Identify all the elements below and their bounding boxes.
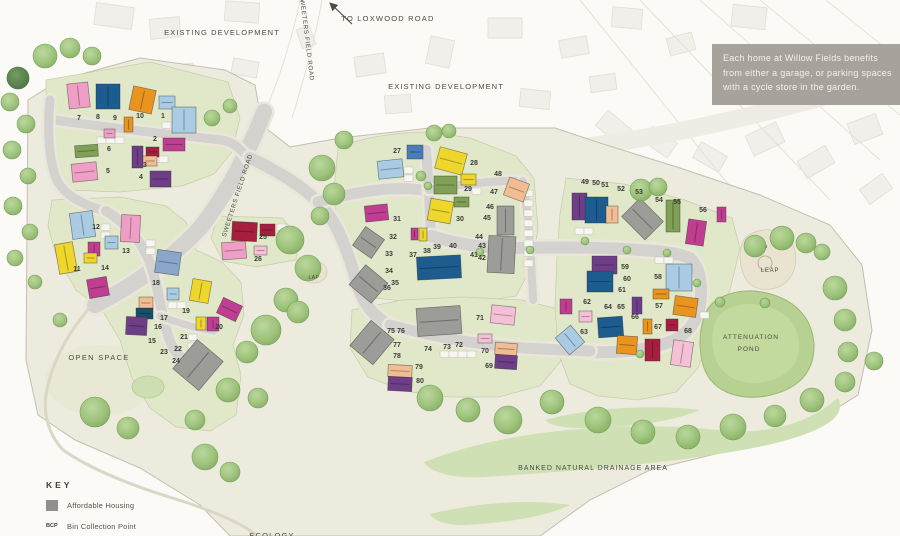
plot-number-31: 31 xyxy=(393,216,401,223)
house xyxy=(673,295,698,317)
plot-number-46: 46 xyxy=(486,204,494,211)
plot-number-77: 77 xyxy=(393,342,401,349)
plot-number-56: 56 xyxy=(699,207,707,214)
tree xyxy=(540,390,564,414)
tree xyxy=(838,342,858,362)
house xyxy=(587,271,613,292)
tree xyxy=(192,444,218,470)
house xyxy=(579,311,592,322)
parking-bay xyxy=(404,167,413,174)
existing-building xyxy=(731,4,767,29)
existing-building xyxy=(425,36,454,68)
tree xyxy=(223,99,237,113)
tree xyxy=(185,410,205,430)
plot-number-18: 18 xyxy=(152,280,160,287)
plot-number-40: 40 xyxy=(449,243,457,250)
plot-number-67: 67 xyxy=(654,324,662,331)
house xyxy=(585,197,608,223)
parking-bay xyxy=(575,228,584,235)
tree xyxy=(335,131,353,149)
tree xyxy=(764,405,786,427)
parking-bay xyxy=(664,257,673,264)
existing-building xyxy=(797,145,835,178)
house xyxy=(560,299,572,314)
tree xyxy=(309,155,335,181)
plot-number-61: 61 xyxy=(618,287,626,294)
tree xyxy=(442,124,456,138)
tree xyxy=(323,183,345,205)
existing-building xyxy=(519,88,551,109)
tree xyxy=(204,110,220,126)
existing-building xyxy=(666,32,696,56)
tree xyxy=(834,309,856,331)
plot-number-22: 22 xyxy=(174,346,182,353)
tree xyxy=(823,276,847,300)
parking-bay xyxy=(162,122,171,129)
plot-number-51: 51 xyxy=(601,182,609,189)
existing-building xyxy=(488,18,522,38)
tree xyxy=(80,397,110,427)
house xyxy=(497,206,514,235)
plot-number-1: 1 xyxy=(161,113,165,120)
map-label-existing-development-2: EXISTING DEVELOPMENT xyxy=(388,82,504,91)
parking-bay xyxy=(524,230,533,237)
tree xyxy=(311,207,329,225)
house xyxy=(487,235,516,273)
map-label-ecology: ECOLOGY xyxy=(249,531,295,536)
parking-bay xyxy=(524,220,533,227)
house xyxy=(71,162,98,183)
house xyxy=(104,129,115,138)
house xyxy=(172,107,196,133)
map-label-banked-natural-drainage-area: BANKED NATURAL DRAINAGE AREA xyxy=(518,465,668,472)
plot-number-14: 14 xyxy=(101,265,109,272)
tree xyxy=(770,226,794,250)
plot-number-33: 33 xyxy=(385,251,393,258)
plot-number-63: 63 xyxy=(580,329,588,336)
plot-number-80: 80 xyxy=(416,378,424,385)
house xyxy=(495,342,518,356)
plot-number-38: 38 xyxy=(423,248,431,255)
parking-bay xyxy=(440,351,449,358)
tree xyxy=(287,301,309,323)
house xyxy=(632,297,642,314)
house xyxy=(666,319,678,331)
parking-bay xyxy=(524,200,533,207)
plot-number-72: 72 xyxy=(455,342,463,349)
house xyxy=(120,215,140,243)
key-item-affordable-housing: Affordable Housing xyxy=(46,499,172,511)
house xyxy=(597,316,623,338)
tree xyxy=(17,115,35,133)
parking-bay xyxy=(404,175,413,182)
house xyxy=(666,264,692,291)
plot-number-23: 23 xyxy=(160,349,168,356)
plot-number-24: 24 xyxy=(172,358,180,365)
house xyxy=(364,204,389,222)
parking-bay xyxy=(467,351,476,358)
parking-bay xyxy=(159,156,168,163)
tree xyxy=(117,417,139,439)
house xyxy=(685,219,706,246)
site-plan: 1234567891011121314151617181920212223242… xyxy=(0,0,900,536)
parking-bay xyxy=(472,188,481,195)
parking-bay xyxy=(524,240,533,247)
tree xyxy=(4,197,22,215)
info-box-line: from either a garage, or parking spaces xyxy=(723,66,900,81)
tree xyxy=(7,250,23,266)
plot-number-71: 71 xyxy=(476,315,484,322)
plot-number-17: 17 xyxy=(160,315,168,322)
plot-number-16: 16 xyxy=(154,324,162,331)
house xyxy=(461,174,476,185)
info-box: Each home at Willow Fields benefits from… xyxy=(712,44,900,105)
plot-number-25: 25 xyxy=(259,234,267,241)
tree xyxy=(649,178,667,196)
tree xyxy=(796,233,816,253)
tree xyxy=(220,462,240,482)
tree xyxy=(835,372,855,392)
tree xyxy=(28,275,42,289)
existing-building xyxy=(94,2,135,29)
plot-number-28: 28 xyxy=(470,160,478,167)
parking-bay xyxy=(168,302,177,309)
plot-number-2: 2 xyxy=(153,136,157,143)
plot-number-48: 48 xyxy=(494,171,502,178)
plot-number-59: 59 xyxy=(621,264,629,271)
plot-number-55: 55 xyxy=(673,199,681,206)
house xyxy=(434,176,457,194)
parking-bay xyxy=(101,224,110,231)
house xyxy=(105,236,118,249)
tree xyxy=(456,398,480,422)
house xyxy=(416,255,461,280)
info-box-line: Each home at Willow Fields benefits xyxy=(723,51,900,66)
tree xyxy=(814,244,830,260)
existing-building xyxy=(611,7,643,30)
plot-number-32: 32 xyxy=(389,234,397,241)
tree xyxy=(623,246,631,254)
parking-bay xyxy=(458,351,467,358)
plot-number-29: 29 xyxy=(464,186,472,193)
plot-number-12: 12 xyxy=(92,224,100,231)
plot-number-42: 42 xyxy=(478,255,486,262)
map-label-lap: LAP xyxy=(309,275,320,281)
tree xyxy=(526,246,534,254)
plot-number-21: 21 xyxy=(180,334,188,341)
house xyxy=(670,340,693,368)
tree xyxy=(426,125,442,141)
existing-building xyxy=(847,114,883,145)
house xyxy=(411,228,418,240)
info-box-line: with a cycle store in the garden. xyxy=(723,80,900,95)
tree xyxy=(20,168,36,184)
plot-number-26: 26 xyxy=(254,256,262,263)
plot-number-66: 66 xyxy=(631,314,639,321)
house xyxy=(388,364,413,377)
plot-number-43: 43 xyxy=(478,243,486,250)
house xyxy=(454,197,469,207)
existing-building xyxy=(589,73,617,92)
map-label-attenuation-pond-1: ATTENUATION xyxy=(723,334,779,341)
plot-number-19: 19 xyxy=(182,308,190,315)
plot-number-74: 74 xyxy=(424,346,432,353)
plot-number-70: 70 xyxy=(481,348,489,355)
plot-number-50: 50 xyxy=(592,180,600,187)
existing-building xyxy=(745,122,785,156)
house xyxy=(96,84,120,109)
plot-number-76: 76 xyxy=(397,328,405,335)
tree xyxy=(715,297,725,307)
house xyxy=(124,117,133,132)
house xyxy=(490,305,516,325)
tree xyxy=(663,249,671,257)
plot-number-3: 3 xyxy=(143,162,147,169)
plot-number-44: 44 xyxy=(475,234,483,241)
house xyxy=(139,297,153,309)
plot-number-30: 30 xyxy=(456,216,464,223)
plot-number-5: 5 xyxy=(106,168,110,175)
house xyxy=(132,146,143,168)
tree xyxy=(636,350,644,358)
tree xyxy=(53,313,67,327)
plot-number-35: 35 xyxy=(391,280,399,287)
house xyxy=(126,316,148,335)
parking-bay xyxy=(524,210,533,217)
house xyxy=(189,279,212,304)
map-label-attenuation-pond-2: POND xyxy=(738,346,761,353)
plot-number-34: 34 xyxy=(385,268,393,275)
house xyxy=(163,138,185,151)
plot-number-47: 47 xyxy=(490,189,498,196)
tree xyxy=(83,47,101,65)
plot-number-11: 11 xyxy=(73,266,81,273)
map-label-to-loxwood-road: TO LOXWOOD ROAD xyxy=(341,14,434,23)
plot-number-13: 13 xyxy=(122,248,130,255)
tree xyxy=(720,414,746,440)
house xyxy=(606,206,618,223)
plot-number-54: 54 xyxy=(655,197,663,204)
tree xyxy=(276,226,304,254)
house xyxy=(616,335,637,354)
existing-building xyxy=(859,174,892,205)
house xyxy=(419,228,427,241)
plot-number-79: 79 xyxy=(415,364,423,371)
house xyxy=(75,144,99,158)
plot-number-15: 15 xyxy=(148,338,156,345)
plot-number-57: 57 xyxy=(655,303,663,310)
plot-number-8: 8 xyxy=(96,114,100,121)
plot-number-73: 73 xyxy=(443,344,451,351)
house xyxy=(643,319,652,334)
key-title: KEY xyxy=(46,480,172,490)
tree xyxy=(236,341,258,363)
tree xyxy=(800,388,824,412)
parking-bay xyxy=(584,228,593,235)
plot-number-36: 36 xyxy=(383,285,391,292)
plot-number-9: 9 xyxy=(113,115,117,122)
existing-building xyxy=(354,53,386,77)
tree xyxy=(585,407,611,433)
tree xyxy=(1,93,19,111)
house xyxy=(427,198,453,224)
affordable-housing-swatch xyxy=(46,500,58,511)
plot-number-4: 4 xyxy=(139,174,143,181)
house xyxy=(388,376,413,391)
parking-bay xyxy=(146,240,155,247)
plot-number-53: 53 xyxy=(635,189,643,196)
house xyxy=(717,207,726,222)
plot-number-64: 64 xyxy=(604,304,612,311)
house xyxy=(478,334,492,343)
plot-number-37: 37 xyxy=(409,252,417,259)
house xyxy=(196,317,206,330)
parking-bay xyxy=(700,312,709,319)
house xyxy=(232,221,258,241)
plot-number-39: 39 xyxy=(433,244,441,251)
plot-number-65: 65 xyxy=(617,304,625,311)
plot-number-6: 6 xyxy=(107,146,111,153)
key-item-bin-collection-point: BCP Bin Collection Point xyxy=(46,520,172,532)
house xyxy=(653,289,669,299)
house xyxy=(87,276,110,298)
existing-building xyxy=(224,1,259,23)
plot-number-60: 60 xyxy=(623,276,631,283)
plot-number-27: 27 xyxy=(393,148,401,155)
tree xyxy=(744,235,766,257)
tree xyxy=(7,67,29,89)
parking-bay xyxy=(524,260,533,267)
plot-number-75: 75 xyxy=(387,328,395,335)
map-label-open-space: OPEN SPACE xyxy=(68,353,129,362)
tree xyxy=(60,38,80,58)
house xyxy=(150,171,171,187)
parking-bay xyxy=(146,248,155,255)
house xyxy=(155,249,182,275)
house xyxy=(146,147,159,157)
map-label-leap: LEAP xyxy=(761,268,780,274)
plot-number-58: 58 xyxy=(654,274,662,281)
house xyxy=(645,339,660,361)
map-label-existing-development-1: EXISTING DEVELOPMENT xyxy=(164,28,280,37)
house xyxy=(129,86,156,114)
tree xyxy=(3,141,21,159)
house xyxy=(84,253,97,263)
tree xyxy=(33,44,57,68)
plot-number-20: 20 xyxy=(215,324,223,331)
house xyxy=(167,288,179,300)
plot-number-68: 68 xyxy=(684,328,692,335)
parking-bay xyxy=(449,351,458,358)
tree xyxy=(676,425,700,449)
house xyxy=(416,305,462,336)
tree xyxy=(424,182,432,190)
plot-number-69: 69 xyxy=(485,363,493,370)
tree xyxy=(865,352,883,370)
parking-bay xyxy=(655,257,664,264)
house xyxy=(67,82,90,109)
open-space-pond xyxy=(132,376,164,398)
house xyxy=(407,145,423,159)
house xyxy=(377,159,404,180)
tree xyxy=(22,224,38,240)
plot-number-41: 41 xyxy=(470,252,478,259)
parking-bay xyxy=(188,334,197,341)
tree xyxy=(416,171,426,181)
tree xyxy=(581,237,589,245)
map-key: KEY Affordable Housing BCP Bin Collectio… xyxy=(46,480,172,536)
tree xyxy=(417,385,443,411)
existing-building xyxy=(559,36,590,59)
existing-building xyxy=(384,94,411,114)
house xyxy=(221,241,246,260)
plot-number-49: 49 xyxy=(581,179,589,186)
house xyxy=(495,354,518,370)
plot-number-78: 78 xyxy=(393,353,401,360)
plot-number-45: 45 xyxy=(483,215,491,222)
plot-number-52: 52 xyxy=(617,186,625,193)
tree xyxy=(494,406,522,434)
tree xyxy=(251,315,281,345)
tree xyxy=(760,298,770,308)
house xyxy=(254,246,267,255)
parking-bay xyxy=(115,137,124,144)
plot-number-10: 10 xyxy=(136,113,144,120)
tree xyxy=(631,420,655,444)
tree xyxy=(693,279,701,287)
tree xyxy=(248,388,268,408)
plot-number-7: 7 xyxy=(77,115,81,122)
plot-number-62: 62 xyxy=(583,299,591,306)
tree xyxy=(216,378,240,402)
